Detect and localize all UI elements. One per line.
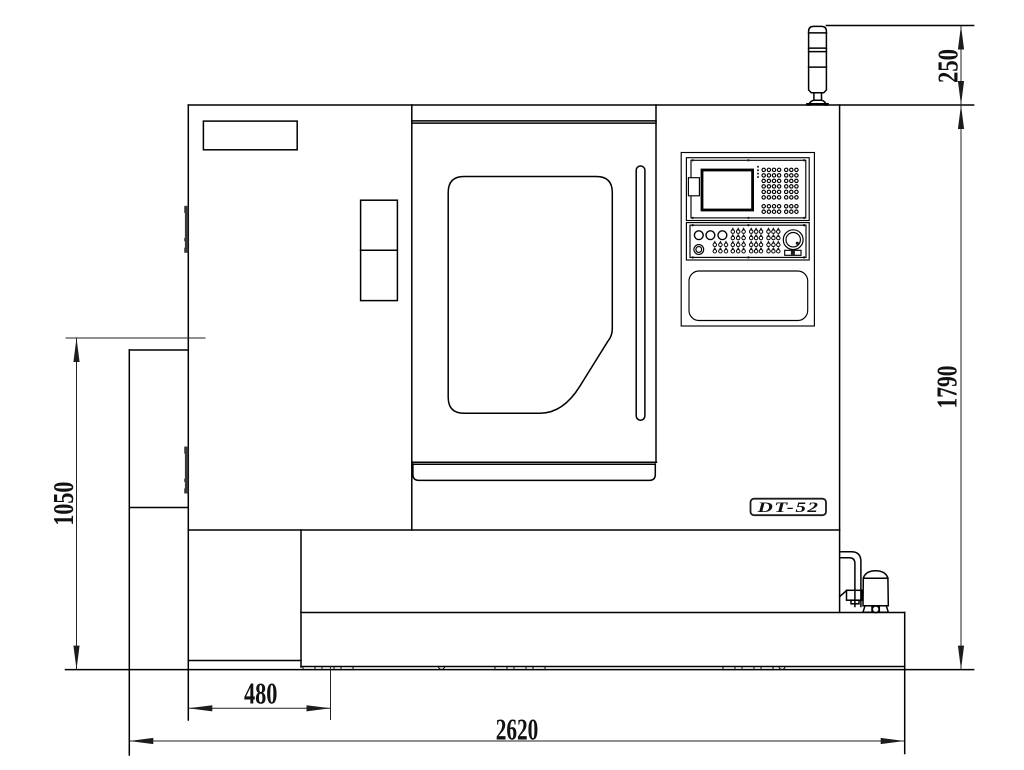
svg-text:1050: 1050 bbox=[48, 482, 80, 526]
svg-text:250: 250 bbox=[932, 49, 964, 83]
svg-text:480: 480 bbox=[244, 676, 278, 711]
svg-text:1790: 1790 bbox=[931, 366, 963, 409]
svg-text:2620: 2620 bbox=[496, 711, 539, 746]
svg-text:DT-52: DT-52 bbox=[756, 500, 819, 516]
